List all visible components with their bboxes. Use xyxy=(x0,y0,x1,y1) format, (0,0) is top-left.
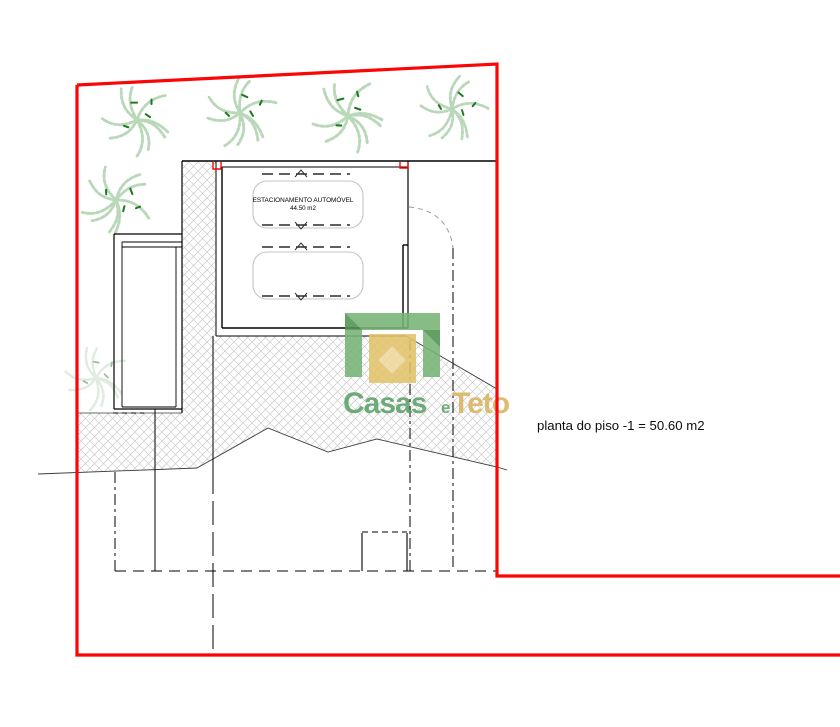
logo-gate-icon xyxy=(345,313,440,383)
garage-label-line1: ESTACIONAMENTO AUTOMÓVEL xyxy=(253,195,354,204)
boundary-notches xyxy=(213,162,408,169)
palm-tree-icon xyxy=(70,156,160,245)
site-plan-drawing: ESTACIONAMENTO AUTOMÓVEL 44.50 m2 Casas … xyxy=(0,0,840,727)
logo-wordmark: Casas e Teto xyxy=(343,387,510,420)
garage-label-line2: 44.50 m2 xyxy=(290,205,316,212)
garage-west-wall-hatch xyxy=(182,161,216,413)
logo-word-casas: Casas xyxy=(343,387,427,420)
palm-tree-icon xyxy=(304,72,391,161)
palm-tree-icon xyxy=(193,67,285,160)
car-outline-2 xyxy=(253,252,363,299)
garage-label: ESTACIONAMENTO AUTOMÓVEL 44.50 m2 xyxy=(253,195,354,212)
logo-word-e: e xyxy=(441,398,450,417)
direction-chevrons xyxy=(295,170,307,300)
palm-tree-icon xyxy=(102,85,171,156)
driveway-arc xyxy=(409,207,453,248)
palm-tree-icon xyxy=(404,62,499,157)
palm-tree-icon-faint xyxy=(60,342,132,415)
parked-cars xyxy=(253,170,363,300)
logo-word-teto: Teto xyxy=(452,387,510,420)
plan-caption: planta do piso -1 = 50.60 m2 xyxy=(537,418,705,433)
parking-dashed-marks xyxy=(262,174,350,296)
